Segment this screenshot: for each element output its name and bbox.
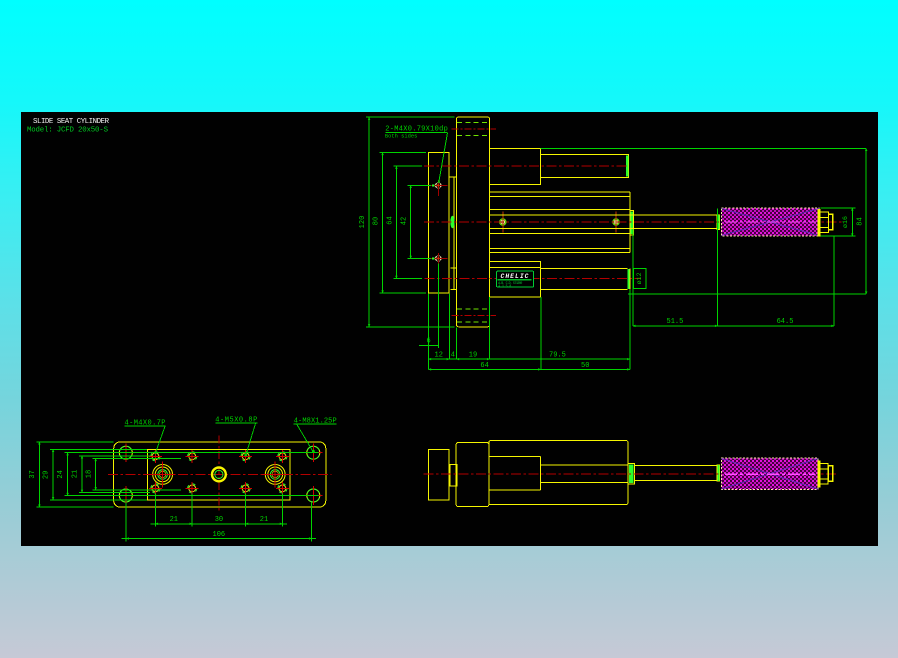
svg-text:Model: JCFD 20x50-S: Model: JCFD 20x50-S bbox=[27, 127, 109, 135]
svg-text:ø12: ø12 bbox=[636, 272, 643, 284]
svg-text:80: 80 bbox=[372, 217, 380, 225]
svg-text:21: 21 bbox=[260, 516, 268, 524]
svg-text:Both sides: Both sides bbox=[385, 133, 418, 139]
svg-text:64: 64 bbox=[480, 362, 488, 370]
svg-text:12: 12 bbox=[435, 352, 443, 360]
svg-text:42: 42 bbox=[400, 217, 408, 225]
svg-text:120: 120 bbox=[359, 216, 367, 229]
svg-text:4: 4 bbox=[451, 352, 455, 360]
svg-text:21: 21 bbox=[170, 516, 178, 524]
svg-text:30: 30 bbox=[215, 516, 223, 524]
svg-text:SLIDE SEAT CYLINDER: SLIDE SEAT CYLINDER bbox=[33, 118, 110, 126]
svg-text:ø16: ø16 bbox=[842, 216, 849, 228]
svg-text:106: 106 bbox=[213, 531, 226, 539]
svg-text:24: 24 bbox=[57, 470, 65, 478]
svg-text:4 1 5 8: 4 1 5 8 bbox=[498, 284, 511, 288]
svg-text:19: 19 bbox=[469, 352, 477, 360]
svg-text:64.5: 64.5 bbox=[777, 318, 794, 326]
svg-text:29: 29 bbox=[43, 471, 51, 479]
svg-text:37: 37 bbox=[29, 470, 37, 478]
svg-text:84: 84 bbox=[857, 217, 865, 225]
svg-text:50: 50 bbox=[581, 362, 589, 370]
svg-text:51.5: 51.5 bbox=[667, 318, 684, 326]
svg-text:18: 18 bbox=[86, 470, 94, 478]
svg-text:64: 64 bbox=[386, 216, 394, 224]
svg-text:21: 21 bbox=[72, 470, 80, 478]
svg-text:79.5: 79.5 bbox=[549, 352, 566, 360]
